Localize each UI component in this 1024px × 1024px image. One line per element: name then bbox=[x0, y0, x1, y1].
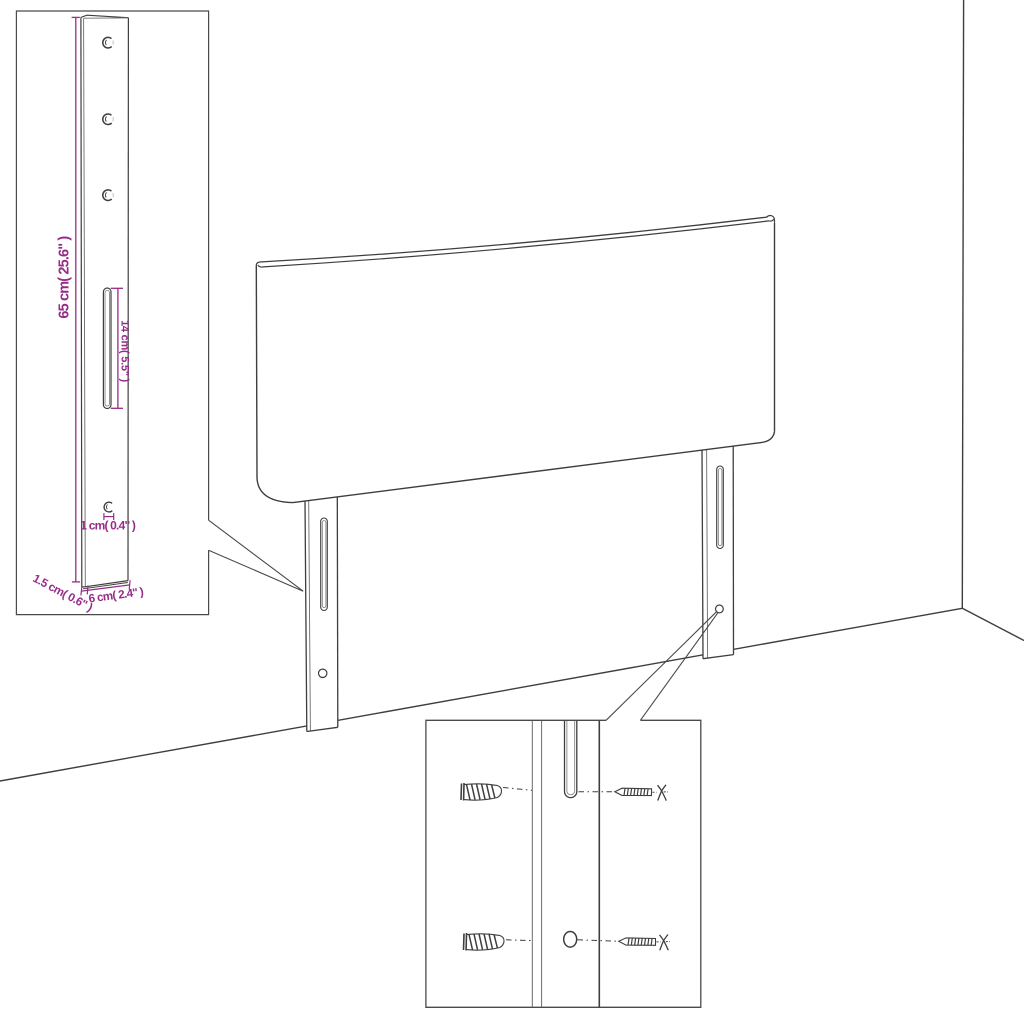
svg-text:14 cm( 5.5" ): 14 cm( 5.5" ) bbox=[118, 320, 130, 382]
svg-text:65 cm( 25.6" ): 65 cm( 25.6" ) bbox=[57, 236, 73, 319]
svg-text:1 cm( 0.4" ): 1 cm( 0.4" ) bbox=[80, 519, 136, 533]
